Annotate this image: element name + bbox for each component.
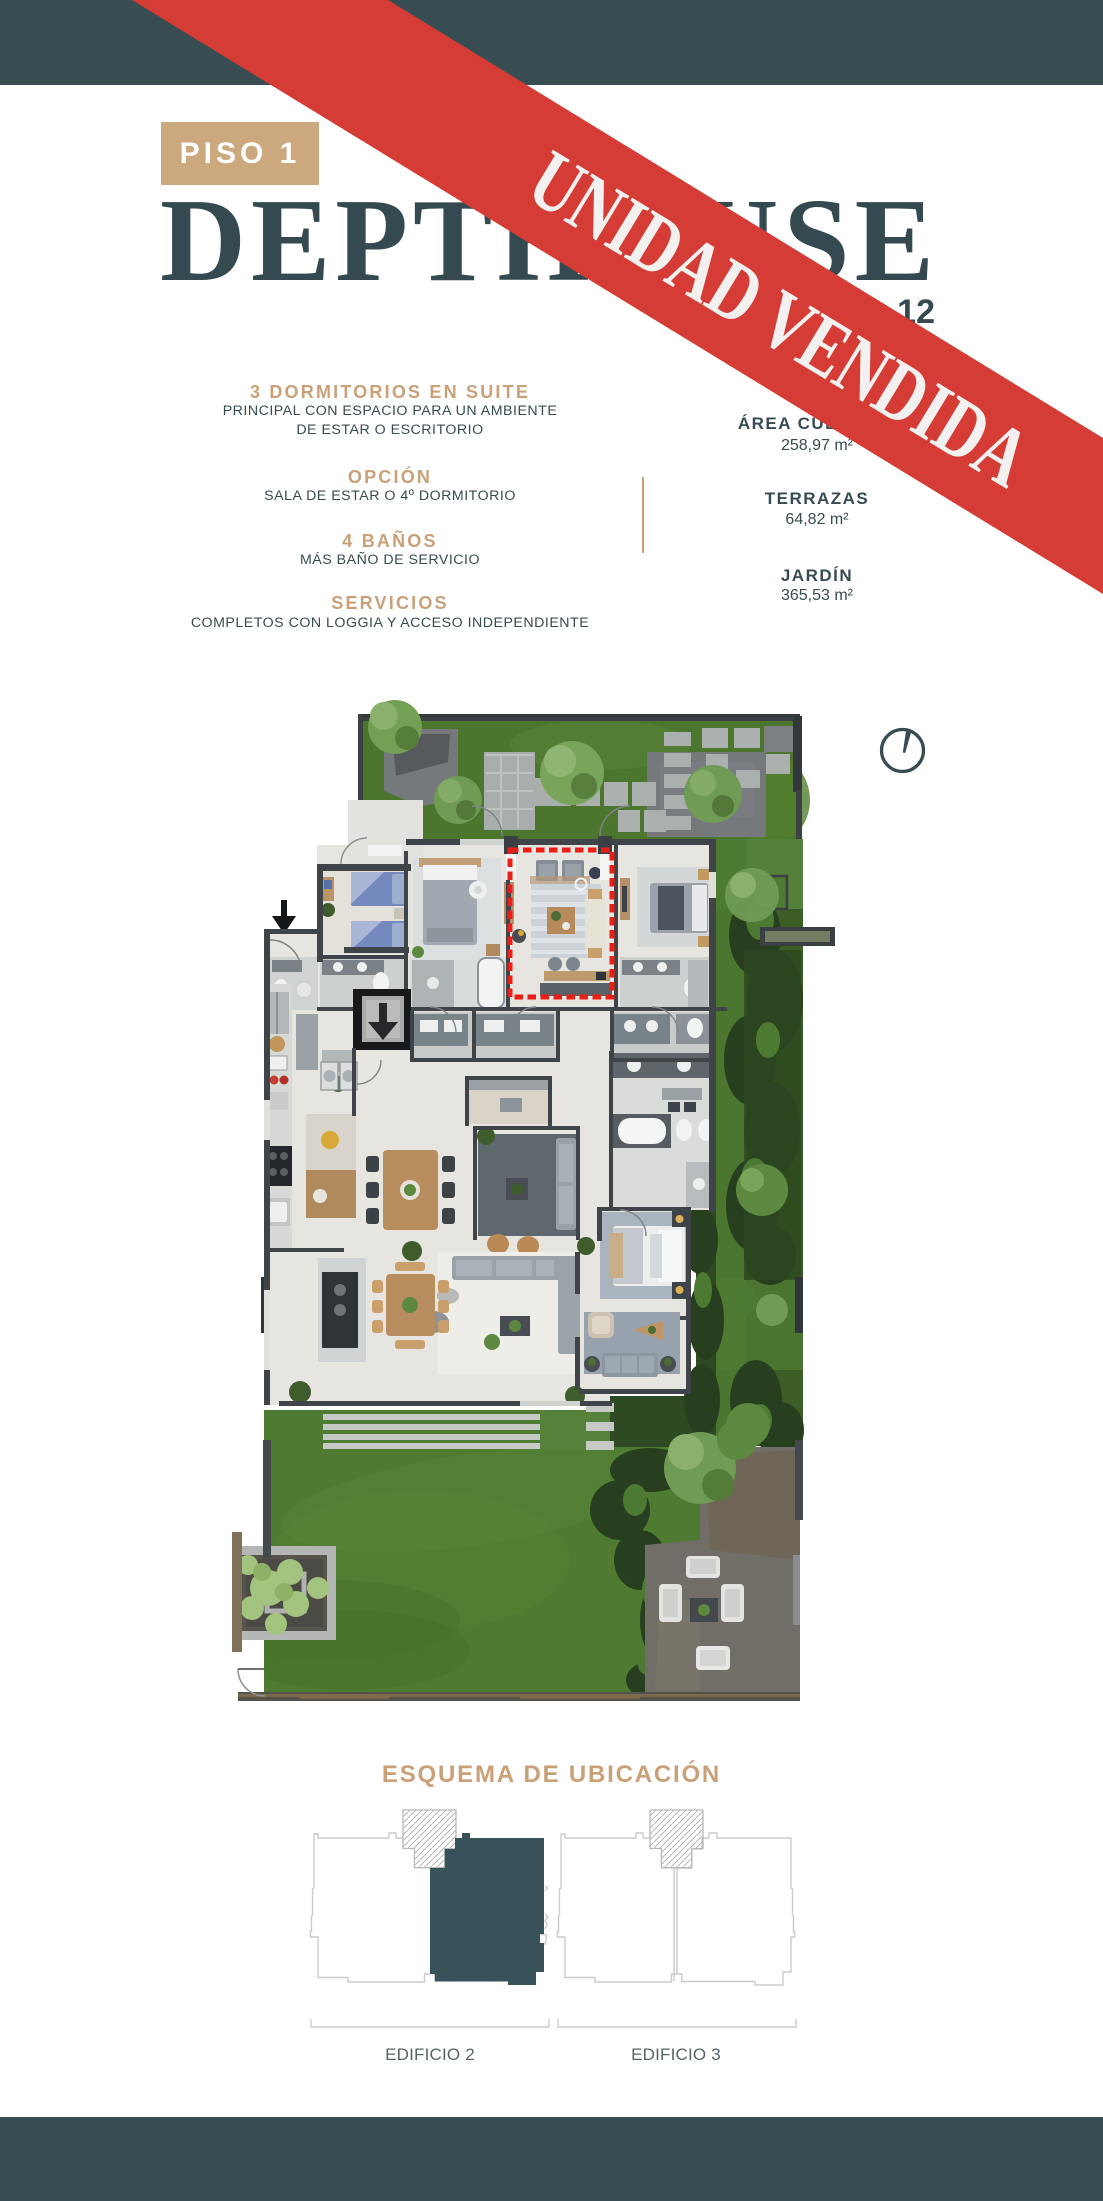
svg-text:UNIDAD VENDIDA: UNIDAD VENDIDA — [513, 133, 1046, 506]
